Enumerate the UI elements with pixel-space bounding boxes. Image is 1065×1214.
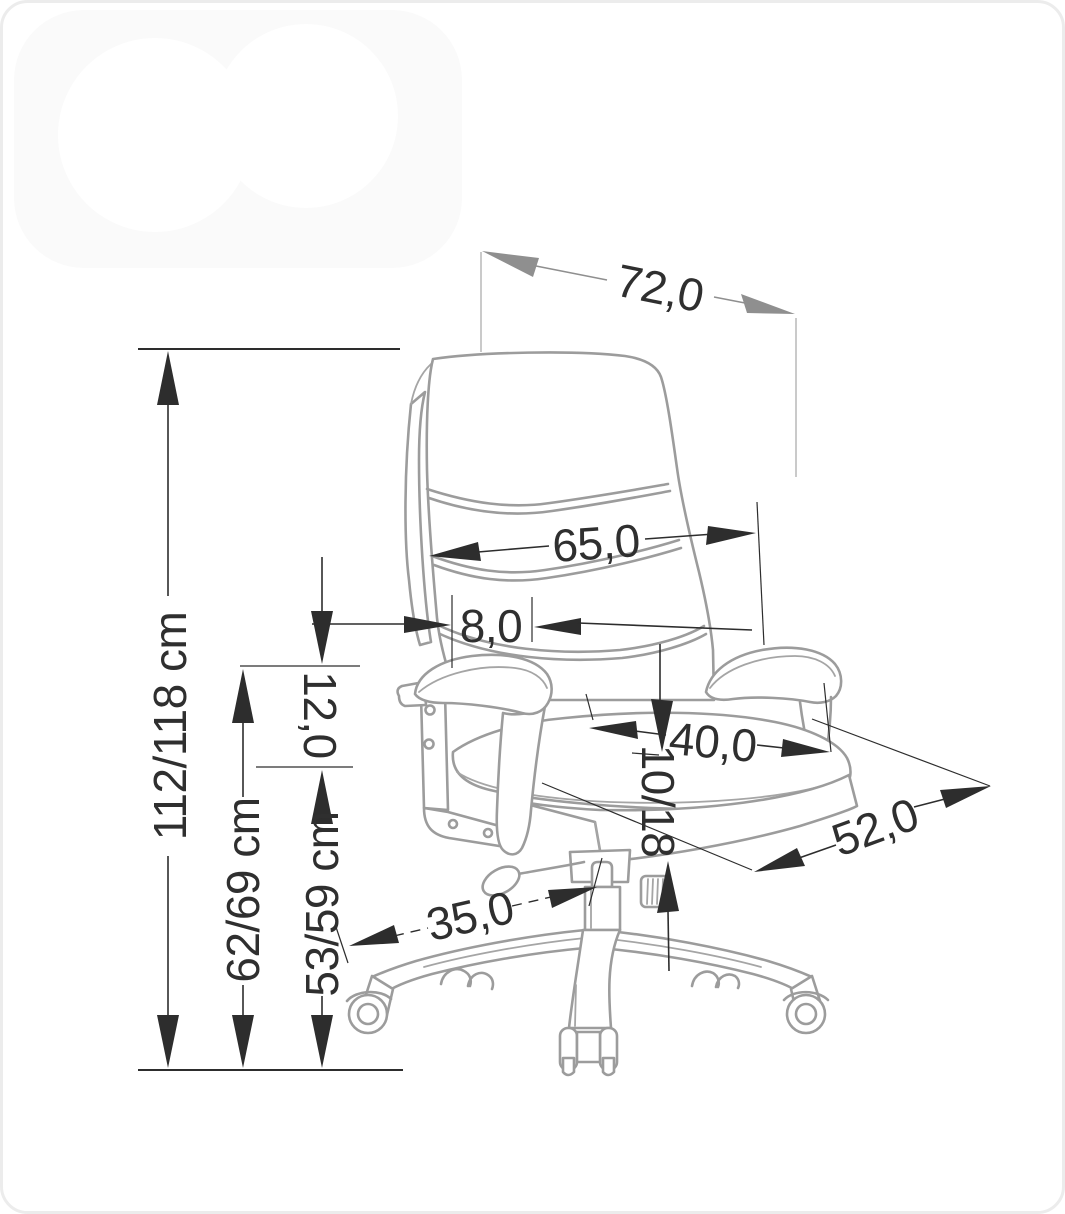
caster-right <box>784 992 828 1033</box>
label-backrest-gap: 8,0 <box>460 600 522 652</box>
chair-line-art <box>347 352 857 1075</box>
label-seat-thickness: 10/18 <box>632 745 684 858</box>
label-overall-width: 72,0 <box>612 254 708 322</box>
label-armrest-height: 62/69 cm <box>217 797 269 982</box>
dim-heights: 112/118 cm 62/69 cm 12,0 53/59 cm <box>138 349 403 1070</box>
chair-dimensions-diagram: 72,0 65,0 8,0 112/118 cm 62/69 c <box>0 0 1065 1214</box>
seat-mechanism <box>570 850 630 887</box>
label-backrest-width: 65,0 <box>551 514 642 572</box>
gas-lift <box>569 887 620 1028</box>
caster-center <box>560 1028 617 1075</box>
watermark <box>14 10 462 268</box>
label-seat-height: 53/59 cm <box>296 811 348 996</box>
label-armrest-rise: 12,0 <box>294 671 346 759</box>
diagram-svg: 72,0 65,0 8,0 112/118 cm 62/69 c <box>0 0 1065 1214</box>
label-total-height: 112/118 cm <box>144 612 196 841</box>
